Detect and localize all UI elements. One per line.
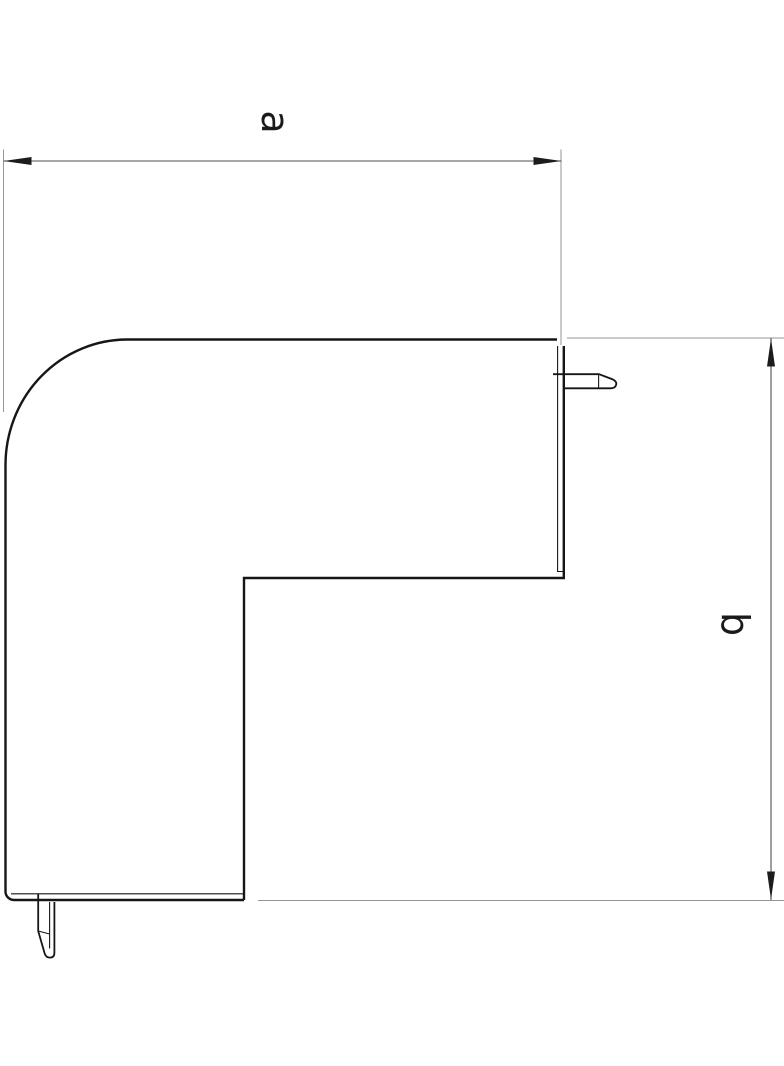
bottom-clip-tab-outline — [38, 894, 54, 958]
right-clip-tab-outline — [553, 374, 616, 388]
bottom-clip-tab — [38, 894, 54, 958]
right-inner-wall-line — [558, 346, 564, 572]
dimension-b: b — [258, 338, 784, 901]
dimension-a-right-arrowhead — [534, 157, 562, 165]
part-inner-wall-lines — [11, 346, 563, 894]
right-clip-tab — [553, 374, 616, 388]
dimension-b-label: b — [713, 612, 757, 636]
dimension-b-bottom-arrowhead — [767, 872, 775, 900]
dimension-a-extension-lines — [4, 150, 562, 413]
dimension-a-left-arrowhead — [4, 157, 32, 165]
dimension-b-extension-lines — [258, 338, 784, 901]
dimension-b-top-arrowhead — [767, 339, 775, 367]
part-outer-outline — [6, 340, 564, 901]
corner-piece — [6, 340, 617, 958]
bottom-clip-tab-chamfer-line — [38, 931, 49, 934]
technical-drawing: a b — [0, 0, 784, 1066]
dimension-b-label-group: b — [713, 612, 757, 636]
dimension-a: a — [4, 110, 562, 412]
dimension-a-label-group: a — [253, 110, 297, 133]
dimension-a-label: a — [253, 110, 297, 133]
drawing-canvas: a b — [0, 0, 784, 1066]
